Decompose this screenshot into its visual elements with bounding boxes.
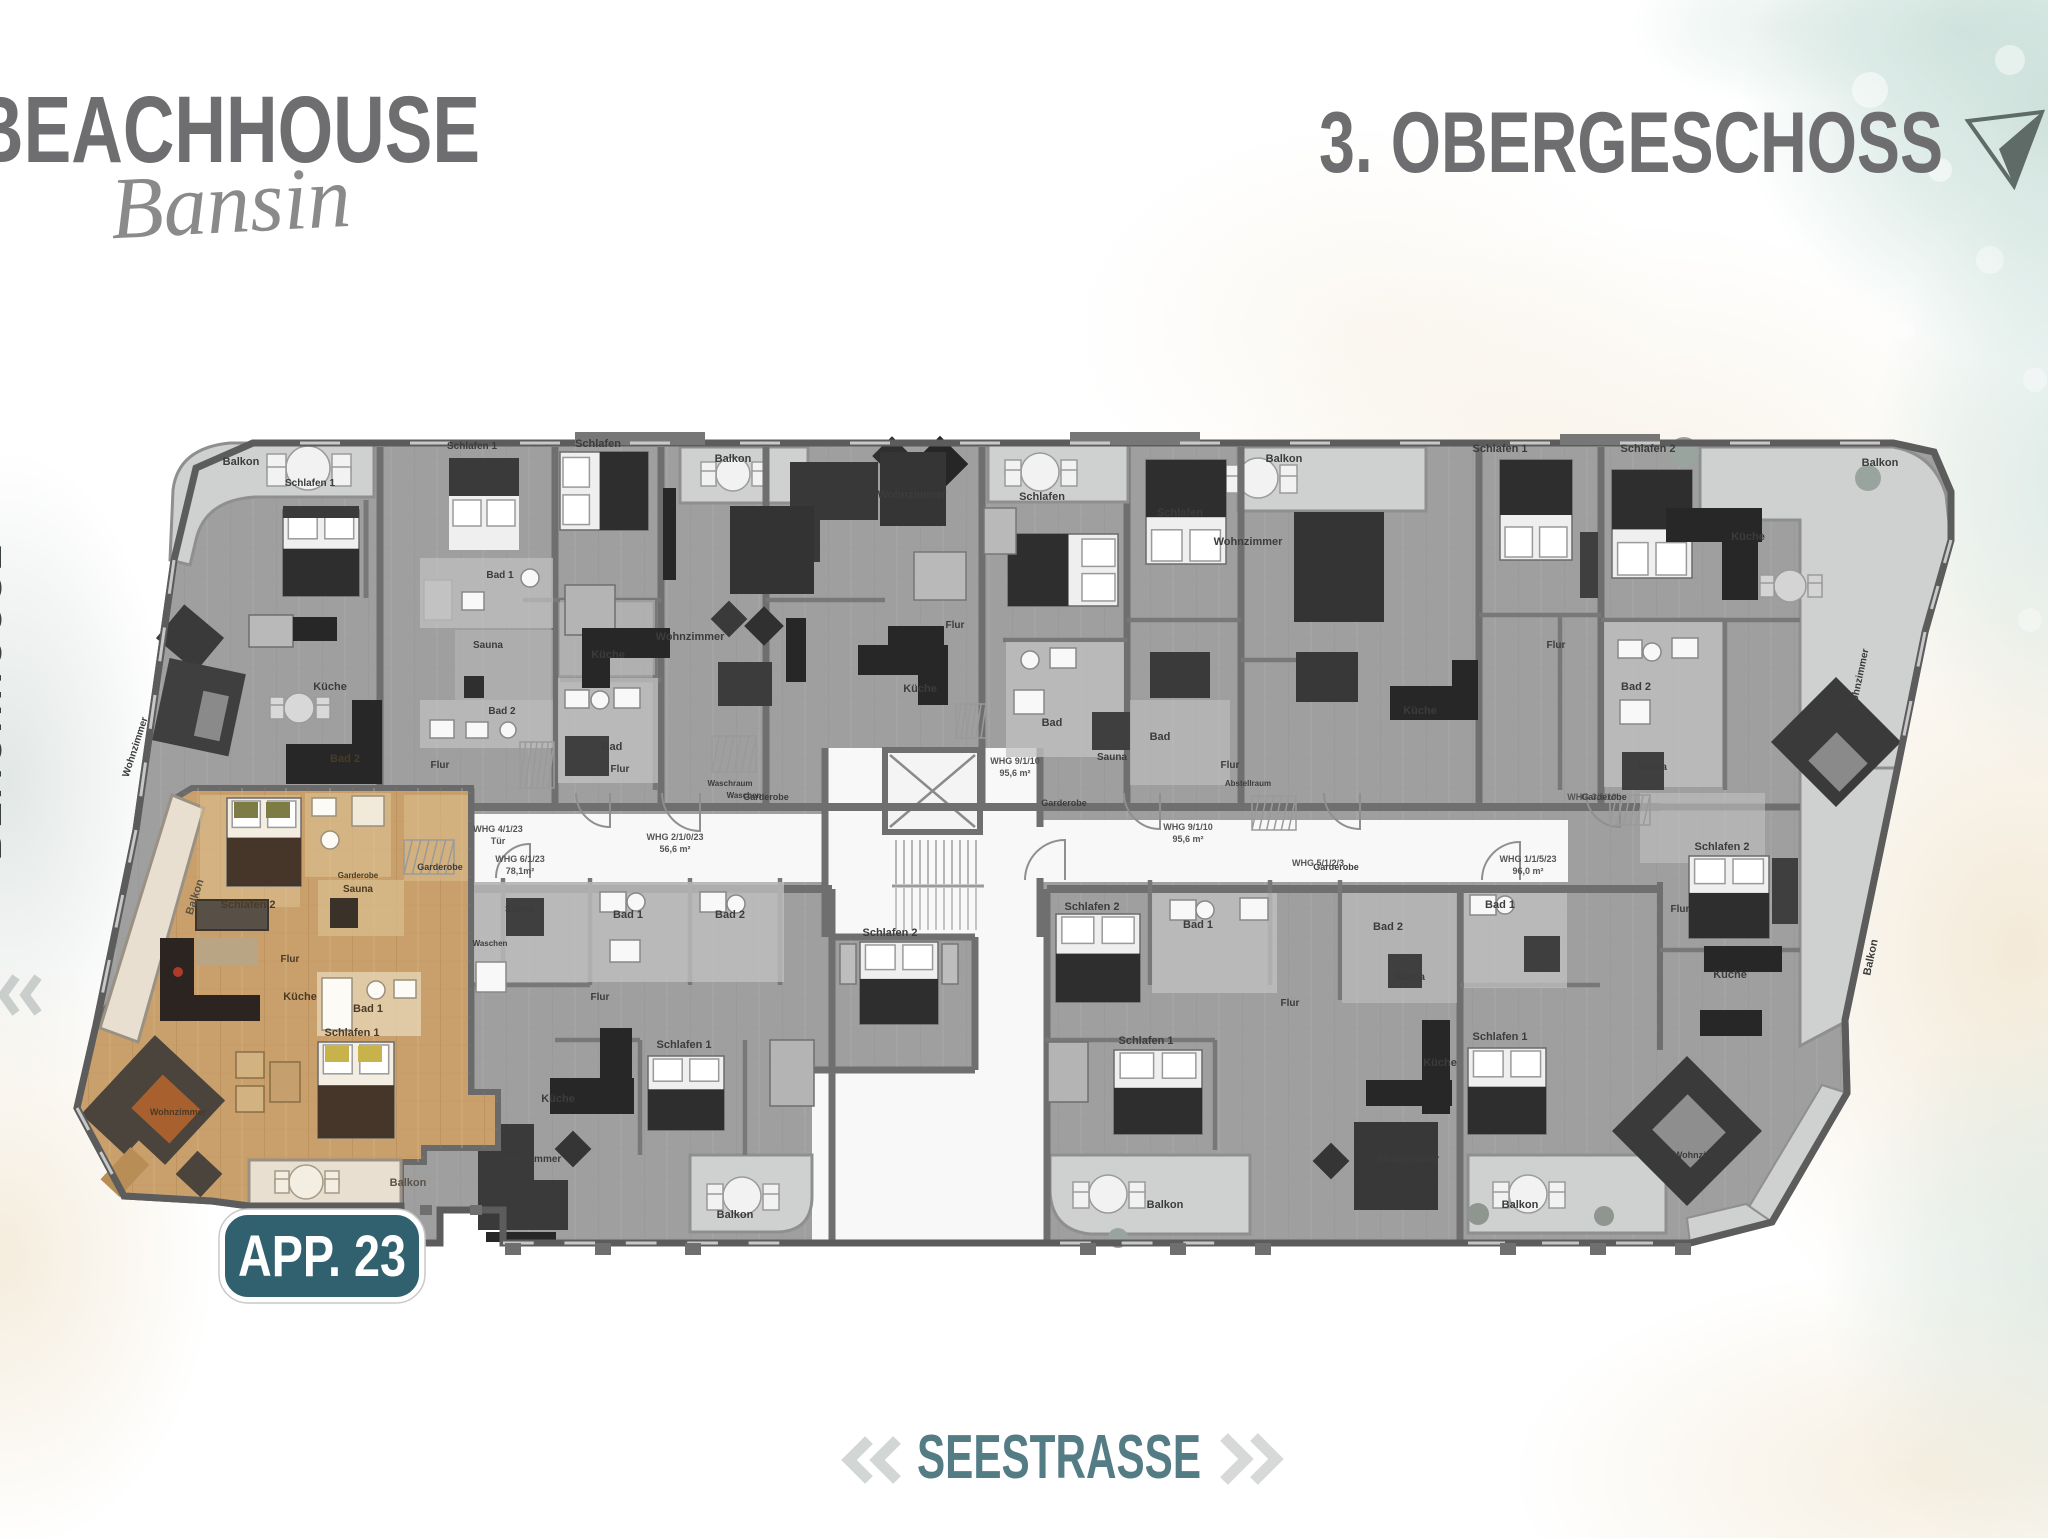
svg-text:Bad 1: Bad 1: [353, 1003, 383, 1015]
svg-text:Balkon: Balkon: [1147, 1199, 1184, 1211]
svg-text:Sauna: Sauna: [505, 904, 535, 915]
svg-text:Sauna: Sauna: [1395, 972, 1425, 983]
svg-text:Schlafen 1: Schlafen 1: [285, 478, 335, 489]
svg-text:APP. 23: APP. 23: [238, 1224, 406, 1289]
svg-text:BEACHHOUSE: BEACHHOUSE: [0, 540, 10, 860]
svg-text:Wohnzimmer: Wohnzimmer: [878, 489, 948, 501]
svg-text:Bad: Bad: [602, 741, 623, 753]
svg-text:95,6 m²: 95,6 m²: [1172, 834, 1203, 844]
svg-text:Wohnzimmer: Wohnzimmer: [499, 1154, 562, 1165]
svg-text:WHG 2/1/0/23: WHG 2/1/0/23: [646, 832, 703, 842]
svg-text:WHG 3/1/10: WHG 3/1/10: [1567, 792, 1617, 802]
svg-text:Küche: Küche: [1403, 705, 1437, 717]
svg-text:Schlafen 2: Schlafen 2: [1620, 443, 1675, 455]
svg-text:Schlafen: Schlafen: [575, 438, 621, 450]
svg-text:Bad 1: Bad 1: [613, 909, 643, 921]
svg-text:Bad 2: Bad 2: [1373, 921, 1403, 933]
svg-text:Wohnzimmer: Wohnzimmer: [1214, 536, 1284, 548]
svg-text:Flur: Flur: [1281, 998, 1300, 1009]
svg-text:Küche: Küche: [283, 991, 317, 1003]
svg-text:Küche: Küche: [313, 681, 347, 693]
svg-text:Balkon: Balkon: [390, 1177, 427, 1189]
svg-text:Garderobe: Garderobe: [417, 862, 463, 872]
svg-text:Flur: Flur: [611, 764, 630, 775]
svg-text:78,1m²: 78,1m²: [506, 866, 535, 876]
svg-text:Flur: Flur: [946, 620, 965, 631]
svg-text:Küche: Küche: [903, 683, 937, 695]
svg-text:Bad 1: Bad 1: [486, 570, 514, 581]
svg-text:Balkon: Balkon: [715, 453, 752, 465]
svg-text:Tür: Tür: [491, 836, 506, 846]
svg-text:WHG 1/1/5/23: WHG 1/1/5/23: [1499, 854, 1556, 864]
svg-text:Schlafen 1: Schlafen 1: [1118, 1035, 1173, 1047]
svg-text:Sauna: Sauna: [1637, 762, 1667, 773]
svg-text:Küche: Küche: [1423, 1057, 1457, 1069]
svg-text:Waschen: Waschen: [727, 791, 762, 800]
svg-text:Schlafen 2: Schlafen 2: [862, 927, 917, 939]
svg-text:Wohnzimmer: Wohnzimmer: [1377, 1154, 1440, 1165]
svg-text:96,0 m²: 96,0 m²: [1512, 866, 1543, 876]
svg-text:Waschraum: Waschraum: [707, 779, 752, 788]
svg-text:Küche: Küche: [541, 1093, 575, 1105]
svg-text:Balkon: Balkon: [1862, 457, 1899, 469]
svg-text:Küche: Küche: [1731, 531, 1765, 543]
svg-text:Schlafen 1: Schlafen 1: [1472, 1031, 1527, 1043]
svg-text:Bad: Bad: [1150, 731, 1171, 743]
svg-text:WHG 4/1/23: WHG 4/1/23: [473, 824, 523, 834]
svg-text:Flur: Flur: [1671, 904, 1690, 915]
svg-text:Bad 1: Bad 1: [1485, 899, 1515, 911]
svg-text:Wohnzimmer: Wohnzimmer: [656, 631, 726, 643]
svg-text:Schlafen 1: Schlafen 1: [447, 441, 497, 452]
svg-text:Bad 2: Bad 2: [715, 909, 745, 921]
svg-text:Schlafen 2: Schlafen 2: [1064, 901, 1119, 913]
svg-text:Abstellraum: Abstellraum: [1225, 779, 1271, 788]
svg-text:Schlafen 1: Schlafen 1: [324, 1027, 379, 1039]
svg-text:Schlafen 1: Schlafen 1: [656, 1039, 711, 1051]
svg-text:Balkon: Balkon: [1502, 1199, 1539, 1211]
svg-text:Küche: Küche: [1713, 969, 1747, 981]
svg-text:Flur: Flur: [1221, 760, 1240, 771]
svg-text:3. OBERGESCHOSS: 3. OBERGESCHOSS: [1319, 95, 1943, 191]
svg-text:Schlafen 2: Schlafen 2: [1694, 841, 1749, 853]
svg-text:Bad 1: Bad 1: [1183, 919, 1213, 931]
svg-text:Wohnzimmer: Wohnzimmer: [1674, 1150, 1731, 1160]
svg-text:Schlafen 2: Schlafen 2: [220, 899, 275, 911]
svg-text:Schlafen: Schlafen: [1019, 491, 1065, 503]
svg-text:Flur: Flur: [431, 760, 450, 771]
svg-text:Sauna: Sauna: [473, 640, 503, 651]
svg-text:Sauna: Sauna: [343, 884, 373, 895]
svg-text:Bad 2: Bad 2: [330, 753, 360, 765]
svg-text:Bansin: Bansin: [108, 149, 353, 258]
svg-text:Schlafen: Schlafen: [1157, 507, 1203, 519]
svg-text:WHG 6/1/23: WHG 6/1/23: [495, 854, 545, 864]
svg-text:Bad: Bad: [1042, 717, 1063, 729]
svg-text:Waschen: Waschen: [473, 939, 508, 948]
svg-text:Küche: Küche: [591, 649, 625, 661]
svg-text:WHG 9/1/10: WHG 9/1/10: [990, 756, 1040, 766]
svg-text:95,6 m²: 95,6 m²: [999, 768, 1030, 778]
svg-text:Flur: Flur: [281, 954, 300, 965]
svg-text:Flur: Flur: [591, 992, 610, 1003]
svg-text:Sauna: Sauna: [1097, 752, 1127, 763]
svg-text:Bad 2: Bad 2: [488, 706, 516, 717]
svg-text:Bad 2: Bad 2: [1621, 681, 1651, 693]
svg-text:56,6 m²: 56,6 m²: [659, 844, 690, 854]
svg-text:Balkon: Balkon: [1266, 453, 1303, 465]
svg-text:Wohnzimmer: Wohnzimmer: [150, 1107, 207, 1117]
svg-text:WHG 9/1/10: WHG 9/1/10: [1163, 822, 1213, 832]
svg-text:Garderobe: Garderobe: [1041, 798, 1087, 808]
svg-text:Balkon: Balkon: [717, 1209, 754, 1221]
svg-text:SEESTRASSE: SEESTRASSE: [917, 1423, 1201, 1492]
svg-text:WHG 5/1/2/3: WHG 5/1/2/3: [1292, 858, 1344, 868]
svg-text:Schlafen 1: Schlafen 1: [1472, 443, 1527, 455]
svg-text:Garderobe: Garderobe: [338, 871, 379, 880]
svg-text:Flur: Flur: [1547, 640, 1566, 651]
svg-text:Balkon: Balkon: [223, 456, 260, 468]
